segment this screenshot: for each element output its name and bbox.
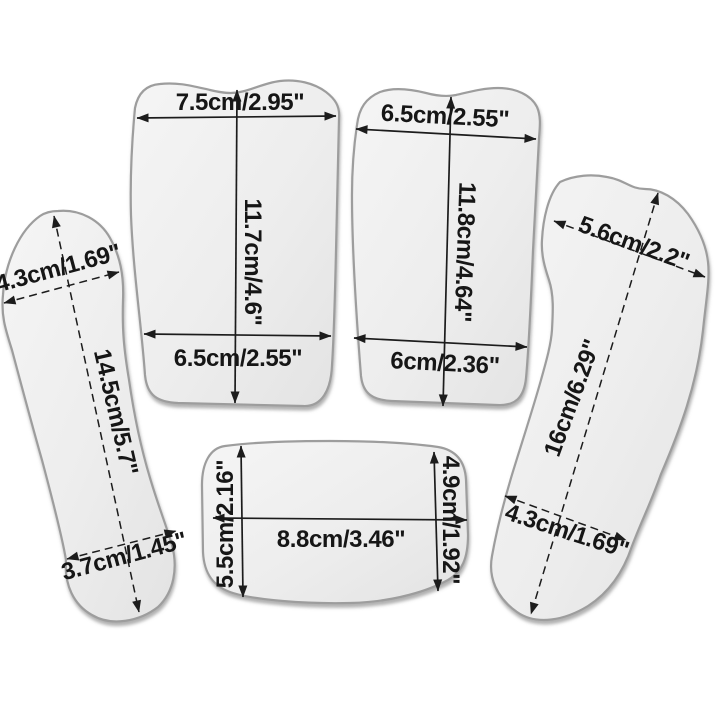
mirror-set-figure: 7.5cm/2.95" 11.7cm/4.6" 6.5cm/2.55" 6.5c… xyxy=(0,0,715,715)
product-dimension-diagram: 7.5cm/2.95" 11.7cm/4.6" 6.5cm/2.55" 6.5c… xyxy=(0,0,715,715)
mirror2-length-label: 11.8cm/4.64" xyxy=(449,182,481,323)
mirror5-width-label: 8.8cm/3.46" xyxy=(277,526,405,553)
mirror2-bottom-width-label: 6cm/2.36" xyxy=(390,347,500,380)
mirror5-left-height-label: 5.5cm/2.16" xyxy=(212,460,239,588)
mirror1-length-label: 11.7cm/4.6" xyxy=(239,198,266,325)
mirror1-bottom-width-label: 6.5cm/2.55" xyxy=(174,345,302,372)
mirror5-right-height-label: 4.9cm/1.92" xyxy=(437,456,464,584)
mirror1-top-width-label: 7.5cm/2.95" xyxy=(176,89,304,116)
